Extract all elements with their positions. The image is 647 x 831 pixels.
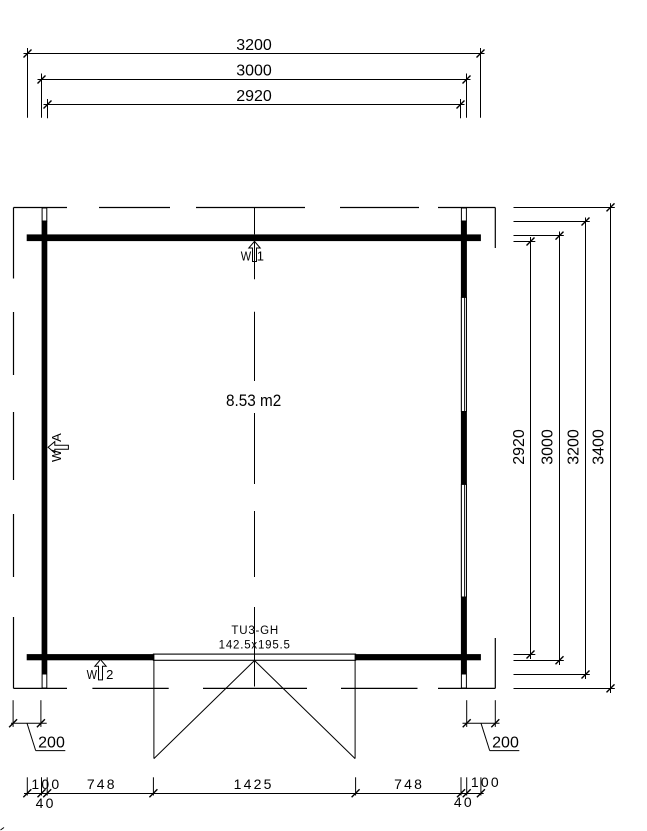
svg-text:100: 100 xyxy=(31,776,61,792)
svg-text:2920: 2920 xyxy=(236,88,272,105)
svg-text:1425: 1425 xyxy=(234,776,274,792)
svg-text:1: 1 xyxy=(257,248,264,263)
svg-text:200: 200 xyxy=(38,735,65,752)
svg-text:3000: 3000 xyxy=(540,429,557,465)
svg-text:3400: 3400 xyxy=(591,429,608,465)
svg-text:3200: 3200 xyxy=(236,37,272,54)
svg-text:8.53 m2: 8.53 m2 xyxy=(226,391,281,410)
svg-text:748: 748 xyxy=(87,776,117,792)
svg-text:142.5x195.5: 142.5x195.5 xyxy=(219,639,291,651)
svg-text:W: W xyxy=(49,449,64,462)
svg-text:40: 40 xyxy=(454,794,474,810)
svg-text:A: A xyxy=(49,433,64,442)
svg-text:2: 2 xyxy=(106,667,113,682)
svg-text:W: W xyxy=(241,248,252,263)
svg-text:W: W xyxy=(87,667,98,682)
svg-text:TU3-GH: TU3-GH xyxy=(231,625,279,637)
svg-text:2920: 2920 xyxy=(511,429,528,465)
svg-text:748: 748 xyxy=(394,776,424,792)
svg-text:200: 200 xyxy=(492,735,519,752)
svg-text:3000: 3000 xyxy=(236,62,272,79)
svg-text:100: 100 xyxy=(471,774,501,790)
svg-text:40: 40 xyxy=(36,795,56,811)
svg-text:3200: 3200 xyxy=(566,429,583,465)
